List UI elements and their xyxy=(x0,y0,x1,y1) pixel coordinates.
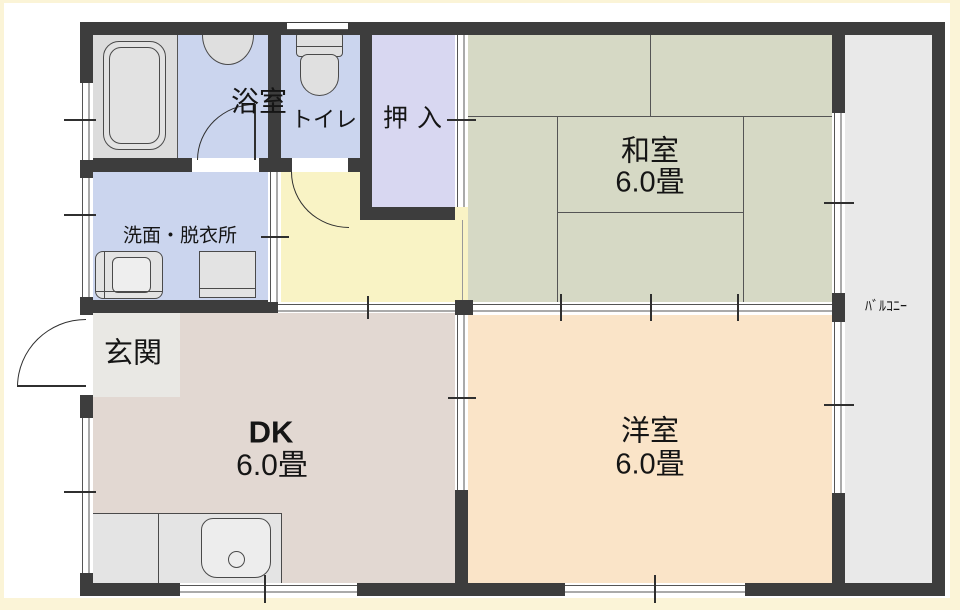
room-size-japanese: 6.0畳 xyxy=(615,169,684,198)
window-kitchen xyxy=(180,583,357,596)
bathtub-inner-rim xyxy=(109,47,160,144)
tatami-line xyxy=(650,35,651,117)
window-balcony-western xyxy=(832,322,845,493)
door-tick xyxy=(650,294,652,321)
room-size-western: 6.0畳 xyxy=(615,451,684,480)
door-tick xyxy=(447,119,476,121)
wall-segment xyxy=(80,22,93,83)
room-label-japanese: 和室 xyxy=(621,138,679,167)
room-label-entrance: 玄関 xyxy=(104,340,162,369)
room-label-closet: 押入 xyxy=(383,107,451,132)
wall-segment xyxy=(745,583,945,596)
tatami-line xyxy=(743,116,744,302)
window xyxy=(80,178,93,297)
window-tick xyxy=(824,404,854,406)
kitchen-sink xyxy=(201,518,271,578)
hallway-japanese-boundary xyxy=(462,220,463,302)
wall-segment xyxy=(80,297,93,315)
door-tick xyxy=(560,294,562,321)
wall-segment xyxy=(259,158,292,172)
wall-segment xyxy=(80,22,945,35)
toilet-bowl xyxy=(300,54,339,96)
window xyxy=(80,83,93,160)
sliding-door-japanese-western xyxy=(473,302,832,313)
wall-segment xyxy=(80,573,93,596)
wall-segment xyxy=(80,395,93,418)
window-tick xyxy=(824,202,854,204)
kitchen-sink-drain xyxy=(228,551,245,568)
washing-machine-line xyxy=(200,288,255,289)
tatami-line xyxy=(468,116,832,117)
window-tick xyxy=(654,575,656,603)
tatami-line xyxy=(557,116,558,302)
floor-plan: 浴室 トイレ 押入 洗面・脱衣所 玄関 DK 6.0畳 和室 6.0畳 洋室 6… xyxy=(0,0,960,610)
wall-segment xyxy=(80,300,278,313)
sliding-door-closet xyxy=(455,35,468,207)
window-tick xyxy=(64,491,96,493)
door-tick xyxy=(367,296,369,319)
entrance-door-leaf xyxy=(17,385,86,387)
room-label-washroom: 洗面・脱衣所 xyxy=(123,227,237,246)
wall-segment xyxy=(80,158,192,172)
wall-segment xyxy=(455,490,468,583)
washing-machine xyxy=(199,251,256,298)
room-label-western: 洋室 xyxy=(621,418,679,447)
room-label-balcony: ﾊﾞﾙｺﾆｰ xyxy=(865,299,907,313)
window-tick xyxy=(264,575,266,603)
window-tick xyxy=(64,214,96,216)
wall-segment xyxy=(357,583,565,596)
wall-segment xyxy=(455,300,473,315)
door-tick xyxy=(448,397,476,399)
room-size-dk: 6.0畳 xyxy=(236,451,308,481)
window-toilet xyxy=(287,23,348,30)
wall-segment xyxy=(360,22,372,220)
room-label-bathroom: 浴室 xyxy=(231,88,287,116)
wall-segment xyxy=(360,207,455,220)
washbasin-line xyxy=(96,291,162,292)
room-label-toilet: トイレ xyxy=(291,109,357,131)
wall-segment xyxy=(80,160,93,178)
window-tick xyxy=(64,119,96,121)
kitchen-counter-divider xyxy=(158,513,159,583)
wall-segment xyxy=(80,583,180,596)
tatami-line xyxy=(557,212,743,213)
wall-segment xyxy=(932,22,945,596)
room-label-dk: DK xyxy=(249,417,294,448)
bathtub-area-divider xyxy=(177,35,178,158)
washbasin-bowl xyxy=(112,257,151,293)
wall-segment xyxy=(832,293,845,322)
wall-segment xyxy=(832,493,845,583)
wall-segment xyxy=(832,22,845,113)
door-tick xyxy=(261,236,289,238)
window xyxy=(80,418,93,573)
sliding-door-dk-western xyxy=(455,315,468,490)
toilet-tank-line xyxy=(297,46,342,47)
door-tick xyxy=(737,294,739,321)
